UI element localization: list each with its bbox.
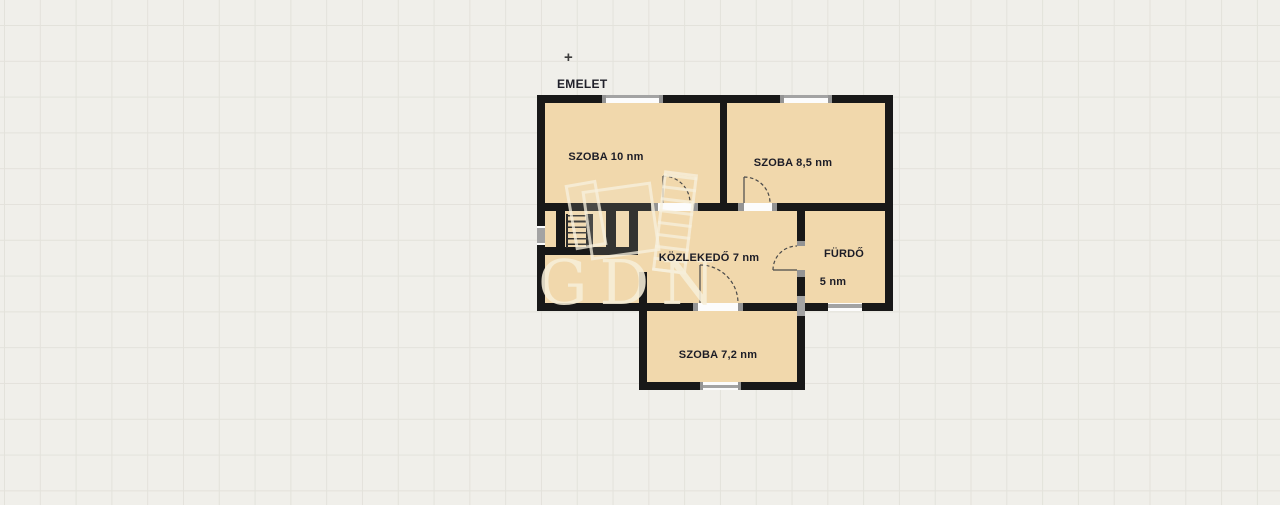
- window-szoba72-bottom: [700, 382, 741, 390]
- window-stair-left: [537, 226, 545, 245]
- door-jamb: [693, 303, 698, 311]
- room-fill-szoba72: [647, 311, 797, 382]
- window-furdo-bottom: [828, 303, 862, 311]
- plan-title: EMELET: [557, 77, 607, 91]
- wall-szoba72-left: [639, 303, 647, 390]
- wall-mid-horizontal: [537, 203, 893, 211]
- wall-junction-marker: [797, 296, 805, 316]
- stair-treads: [568, 215, 590, 249]
- room-label-szoba72: SZOBA 7,2 nm: [679, 349, 757, 361]
- window-szoba10-top: [602, 95, 663, 103]
- wall-corridor-stub: [639, 272, 647, 305]
- window-szoba85-top: [780, 95, 832, 103]
- door-jamb: [797, 241, 805, 246]
- door-opening-szoba72: [698, 303, 738, 311]
- stair-treads-edge: [566, 214, 568, 248]
- room-label-szoba85: SZOBA 8,5 nm: [754, 157, 832, 169]
- wall-top: [537, 95, 893, 103]
- floorplan-canvas: GDN + EMELET SZOBA 10 nm SZOBA 8,5 nm KÖ…: [0, 0, 1280, 505]
- door-jamb: [738, 303, 743, 311]
- room-label-kozlekedo: KÖZLEKEDŐ 7 nm: [659, 252, 760, 264]
- wall-stair-divider-1: [556, 211, 565, 247]
- wall-furdo-left-upper: [797, 203, 805, 241]
- door-jamb: [651, 203, 658, 211]
- wall-szoba72-right: [797, 303, 805, 390]
- plus-marker: +: [564, 49, 573, 66]
- wall-stair-right: [629, 203, 638, 255]
- door-jamb: [693, 203, 698, 211]
- door-opening-szoba10: [658, 203, 693, 211]
- door-jamb: [797, 270, 805, 277]
- wall-stair-divider-3: [606, 211, 616, 247]
- room-label-furdo: FÜRDŐ: [824, 248, 864, 260]
- door-jamb: [772, 203, 777, 211]
- door-opening-szoba85: [744, 203, 772, 211]
- room-label-furdo-area: 5 nm: [820, 276, 846, 288]
- room-label-szoba10: SZOBA 10 nm: [568, 151, 643, 163]
- wall-divider-top-rooms: [720, 103, 727, 203]
- door-jamb: [738, 203, 744, 211]
